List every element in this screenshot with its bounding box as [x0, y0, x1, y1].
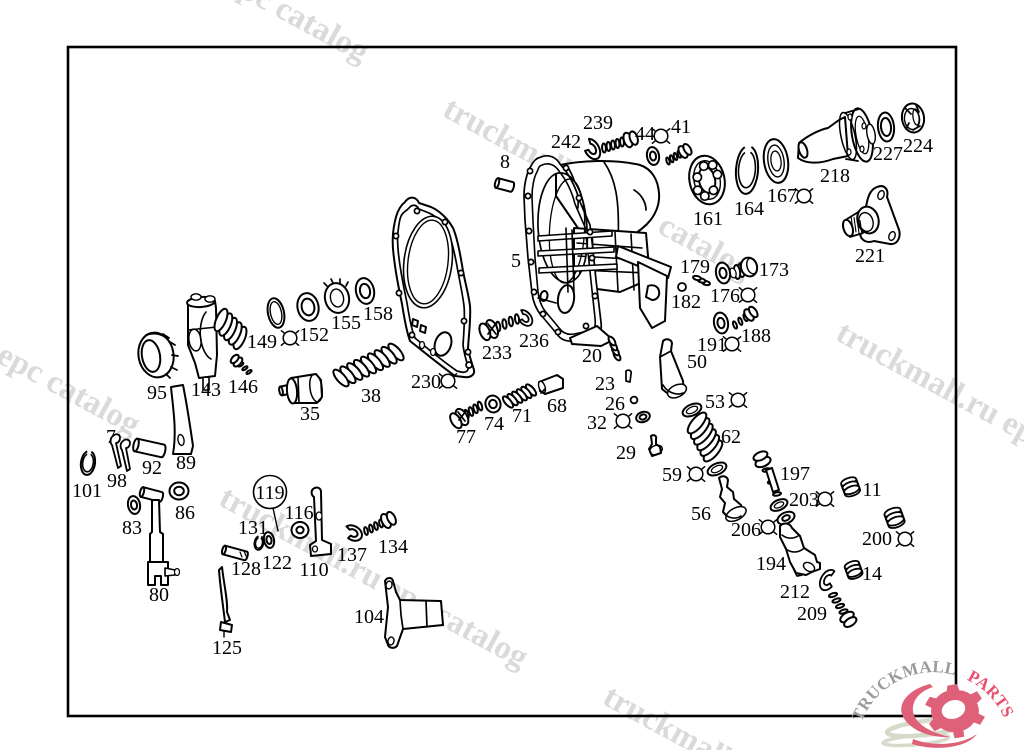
svg-text:14: 14: [862, 563, 882, 585]
svg-text:77: 77: [456, 426, 476, 448]
svg-text:158: 158: [363, 303, 393, 325]
svg-text:20: 20: [582, 345, 602, 367]
svg-text:152: 152: [299, 324, 329, 346]
svg-text:83: 83: [122, 517, 142, 539]
svg-text:197: 197: [780, 463, 810, 485]
svg-text:110: 110: [299, 559, 328, 581]
svg-text:164: 164: [734, 198, 764, 220]
svg-text:149: 149: [247, 331, 277, 353]
svg-text:26: 26: [605, 393, 625, 415]
svg-text:89: 89: [176, 452, 196, 474]
svg-text:137: 137: [337, 544, 367, 566]
svg-text:161: 161: [693, 208, 723, 230]
svg-text:194: 194: [756, 553, 786, 575]
svg-text:119: 119: [255, 482, 284, 504]
svg-text:188: 188: [741, 325, 771, 347]
svg-text:116: 116: [284, 502, 313, 524]
svg-text:92: 92: [142, 457, 162, 479]
svg-text:230: 230: [411, 371, 441, 393]
svg-text:32: 32: [587, 412, 607, 434]
svg-text:11: 11: [862, 479, 881, 501]
svg-text:128: 128: [231, 558, 261, 580]
svg-text:8: 8: [500, 151, 510, 173]
svg-text:53: 53: [705, 391, 725, 413]
svg-text:59: 59: [662, 464, 682, 486]
svg-text:35: 35: [300, 403, 320, 425]
svg-text:38: 38: [361, 385, 381, 407]
svg-text:209: 209: [797, 603, 827, 625]
svg-text:227: 227: [873, 143, 903, 165]
svg-text:131: 131: [238, 517, 268, 539]
svg-text:167: 167: [767, 185, 797, 207]
svg-text:122: 122: [262, 552, 292, 574]
svg-text:56: 56: [691, 503, 711, 525]
svg-text:101: 101: [72, 480, 102, 502]
svg-text:173: 173: [759, 259, 789, 281]
svg-text:7: 7: [106, 426, 116, 448]
svg-text:143: 143: [191, 379, 221, 401]
svg-text:125: 125: [212, 637, 242, 659]
svg-text:95: 95: [147, 382, 167, 404]
svg-text:71: 71: [512, 405, 532, 427]
svg-text:104: 104: [354, 606, 384, 628]
svg-text:242: 242: [551, 131, 581, 153]
svg-text:239: 239: [583, 112, 613, 134]
svg-text:86: 86: [175, 502, 195, 524]
svg-text:233: 233: [482, 342, 512, 364]
svg-text:206: 206: [731, 519, 761, 541]
svg-text:41: 41: [671, 116, 691, 138]
svg-text:221: 221: [855, 245, 885, 267]
svg-text:200: 200: [862, 528, 892, 550]
svg-text:155: 155: [331, 312, 361, 334]
svg-text:74: 74: [484, 413, 504, 435]
svg-text:98: 98: [107, 470, 127, 492]
svg-text:146: 146: [228, 376, 258, 398]
svg-text:182: 182: [671, 291, 701, 313]
svg-text:134: 134: [378, 536, 408, 558]
svg-text:179: 179: [680, 256, 710, 278]
svg-text:62: 62: [721, 426, 741, 448]
svg-text:5: 5: [511, 250, 521, 272]
svg-text:236: 236: [519, 330, 549, 352]
svg-text:23: 23: [595, 373, 615, 395]
svg-text:68: 68: [547, 395, 567, 417]
svg-text:50: 50: [687, 351, 707, 373]
svg-text:44: 44: [635, 123, 655, 145]
svg-text:203: 203: [789, 489, 819, 511]
svg-text:29: 29: [616, 442, 636, 464]
svg-text:176: 176: [710, 285, 740, 307]
svg-text:224: 224: [903, 135, 933, 157]
svg-text:212: 212: [780, 581, 810, 603]
svg-text:218: 218: [820, 165, 850, 187]
svg-text:80: 80: [149, 584, 169, 606]
